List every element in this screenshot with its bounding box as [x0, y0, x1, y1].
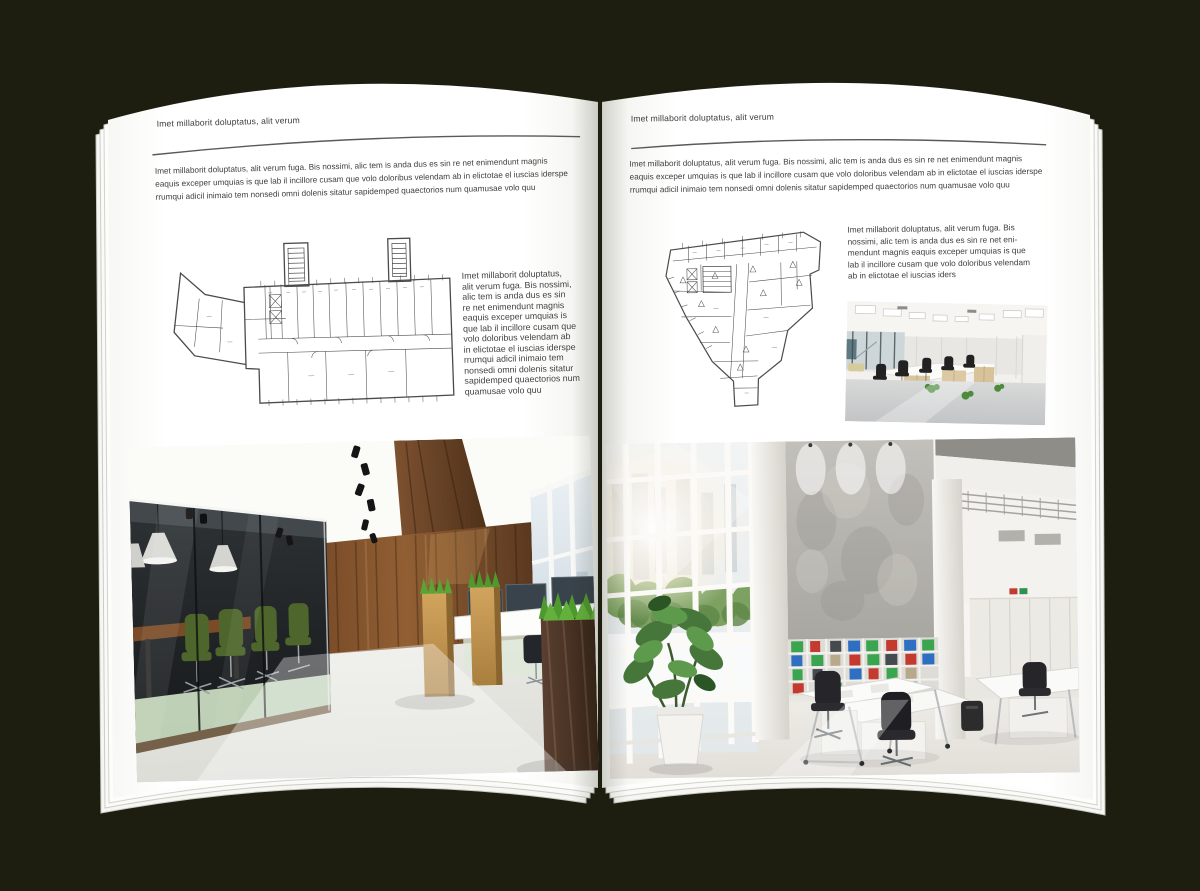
- right-intro-paragraph: Imet millaborit doluptatus, alit verum f…: [629, 152, 1042, 197]
- cabinet-wall: [969, 587, 1078, 676]
- glass-partition: [846, 331, 905, 372]
- book-spine-shadow: [572, 58, 628, 806]
- magazine-spread-mockup: Imet millaborit doluptatus, alit verum I…: [0, 0, 1200, 891]
- right-page-header: Imet millaborit doluptatus, alit verum: [631, 112, 774, 124]
- floorplan-irregular-building: [652, 217, 840, 420]
- column-left: [751, 441, 789, 739]
- concrete-wall: [785, 439, 936, 639]
- right-photo-small-open-office: [845, 301, 1047, 425]
- left-floorplan: [164, 218, 459, 421]
- plan-interior-walls: [173, 279, 454, 404]
- plan-label-marks: [206, 287, 426, 379]
- left-side-column: Imet millaborit doluptatus, alit verum f…: [462, 268, 581, 397]
- right-side-column: Imet millaborit doluptatus, alit verum f…: [847, 222, 1030, 282]
- left-photo-office-interior: [128, 436, 599, 783]
- right-photo-atrium-office: [605, 437, 1080, 779]
- plan-outer-walls: [172, 237, 454, 405]
- plan-label-marks: [693, 242, 795, 393]
- floorplan-wide-building: [164, 218, 459, 416]
- left-page-header: Imet millaborit doluptatus, alit verum: [157, 115, 300, 129]
- plan-interior-walls: [672, 234, 818, 389]
- right-page: Imet millaborit doluptatus, alit verum I…: [602, 55, 1104, 807]
- right-floorplan: [652, 217, 840, 425]
- plan-symbols: [680, 261, 803, 371]
- left-page: Imet millaborit doluptatus, alit verum I…: [108, 49, 617, 802]
